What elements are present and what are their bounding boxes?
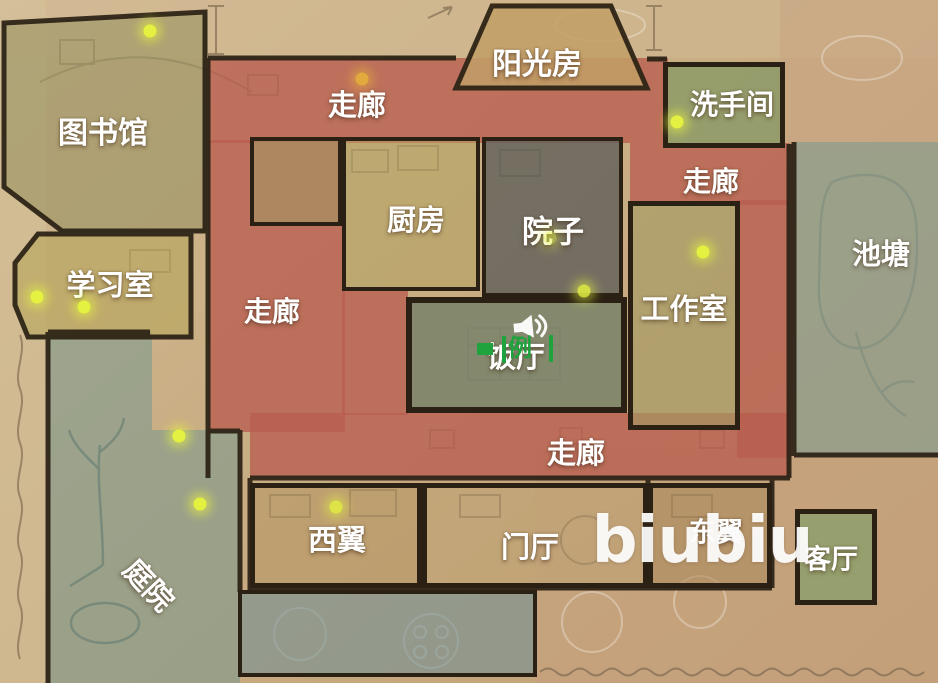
label-workshop: 工作室 [640,286,727,328]
label-corridor-left: 走廊 [244,290,300,330]
room-garden-lower [152,430,240,683]
label-pond: 池塘 [852,231,910,273]
collectible-dot [194,498,207,511]
label-foyer: 门厅 [501,524,559,566]
game-map-canvas: 例 biubiu 阳光房走廊洗手间图书馆走廊厨房院子池塘学习室走廊工作室饭厅走廊… [0,0,938,683]
room-garden-upper [48,332,152,683]
room-pond [795,142,938,456]
label-corridor-top: 走廊 [328,82,386,124]
label-study: 学习室 [66,262,153,304]
green-marker-bar [502,336,506,363]
room-terrace [238,590,537,677]
green-marker-text: 例 [508,336,532,360]
room-pantry [250,137,342,226]
collectible-dot [356,73,369,86]
label-west-wing: 西翼 [308,517,366,559]
collectible-dot [144,25,157,38]
collectible-dot [330,501,343,514]
collectible-dot [173,430,186,443]
collectible-dot [578,285,591,298]
label-bathroom: 洗手间 [690,83,774,123]
label-sunroom: 阳光房 [492,39,582,83]
collectible-dot [78,301,91,314]
collectible-dot [697,246,710,259]
collectible-dot [31,291,44,304]
label-courtyard: 院子 [522,207,584,252]
collectible-dot [671,116,684,129]
label-library: 图书馆 [58,108,148,152]
label-corridor-bottom: 走廊 [547,430,605,472]
label-kitchen: 厨房 [387,197,445,239]
corridor-area [342,291,408,415]
label-corridor-right: 走廊 [683,160,739,200]
green-marker-square [477,343,493,355]
watermark-biubiu: biubiu [592,504,813,578]
green-marker-bar [549,335,553,362]
collectible-dot [544,232,557,245]
